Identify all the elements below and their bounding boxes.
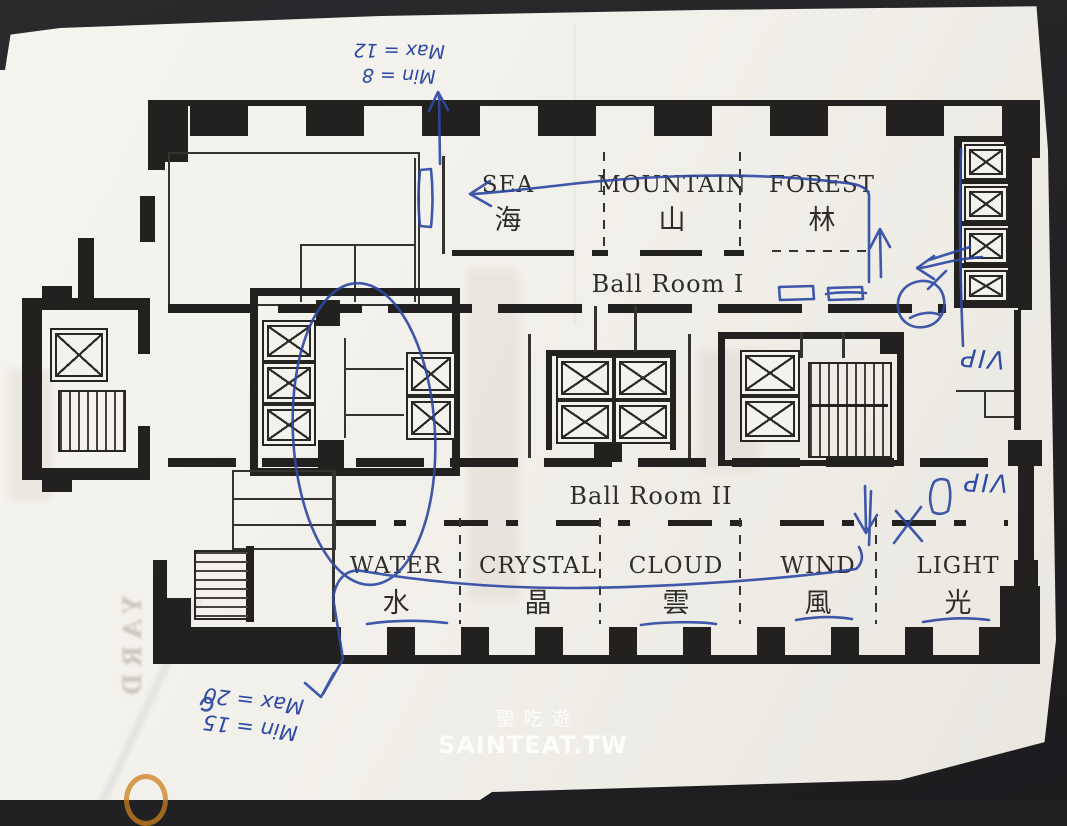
elevator-icon <box>964 144 1008 180</box>
elevator-icon <box>964 270 1008 302</box>
room-label-sea-zh: 海 <box>495 198 522 237</box>
floor-plan: SEA 海 MOUNTAIN 山 FOREST 林 Ball Room I Ba… <box>0 0 1067 800</box>
room-label-water-zh: 水 <box>383 581 410 620</box>
elevator-icon <box>964 228 1008 264</box>
top-note-min: Min = 8 <box>336 62 462 89</box>
elevator-icon <box>262 404 316 446</box>
elevator-icon <box>262 320 316 362</box>
elevator-icon <box>406 396 456 440</box>
elevator-icon <box>262 362 316 404</box>
watermark: 聖吃遊 SAINTEAT.TW <box>438 704 628 759</box>
room-label-forest: FOREST <box>769 172 875 198</box>
top-note-max: Max = 12 <box>336 37 462 64</box>
room-label-sea: SEA <box>482 172 534 198</box>
room-label-water: WATER <box>350 553 442 579</box>
elevator-icon <box>556 356 614 400</box>
handwritten-vip-lower: VIP <box>953 467 1018 498</box>
handwritten-note-top: Min = 8 Max = 12 <box>336 37 463 89</box>
room-label-wind-zh: 風 <box>805 581 832 620</box>
elevator-icon <box>964 186 1008 222</box>
handwritten-vip-upper: VIP <box>949 342 1015 375</box>
stairs-icon <box>58 390 126 452</box>
elevator-icon <box>556 400 614 444</box>
room-label-mountain: MOUNTAIN <box>597 172 747 198</box>
elevator-icon <box>50 328 108 382</box>
watermark-chinese: 聖吃遊 <box>438 704 628 731</box>
room-label-wind: WIND <box>780 553 855 579</box>
room-label-crystal: CRYSTAL <box>479 553 597 579</box>
room-label-cloud: CLOUD <box>629 553 724 579</box>
elevator-icon <box>740 396 800 442</box>
room-label-cloud-zh: 雲 <box>663 581 690 620</box>
ballroom-2-label: Ball Room II <box>569 482 732 510</box>
ballroom-1-label: Ball Room I <box>592 270 745 298</box>
room-label-crystal-zh: 晶 <box>525 581 552 620</box>
stairs-icon <box>808 362 892 458</box>
elevator-icon <box>406 352 456 396</box>
room-label-light-zh: 光 <box>945 581 972 620</box>
room-label-mountain-zh: 山 <box>659 198 686 237</box>
elevator-icon <box>740 350 800 396</box>
room-label-light: LIGHT <box>916 553 999 579</box>
photo-of-floor-plan: YARD <box>0 0 1067 800</box>
stairs-icon <box>194 550 250 620</box>
elevator-icon <box>614 400 672 444</box>
watermark-url: SAINTEAT.TW <box>438 731 628 759</box>
elevator-icon <box>614 356 672 400</box>
room-label-forest-zh: 林 <box>809 198 836 237</box>
